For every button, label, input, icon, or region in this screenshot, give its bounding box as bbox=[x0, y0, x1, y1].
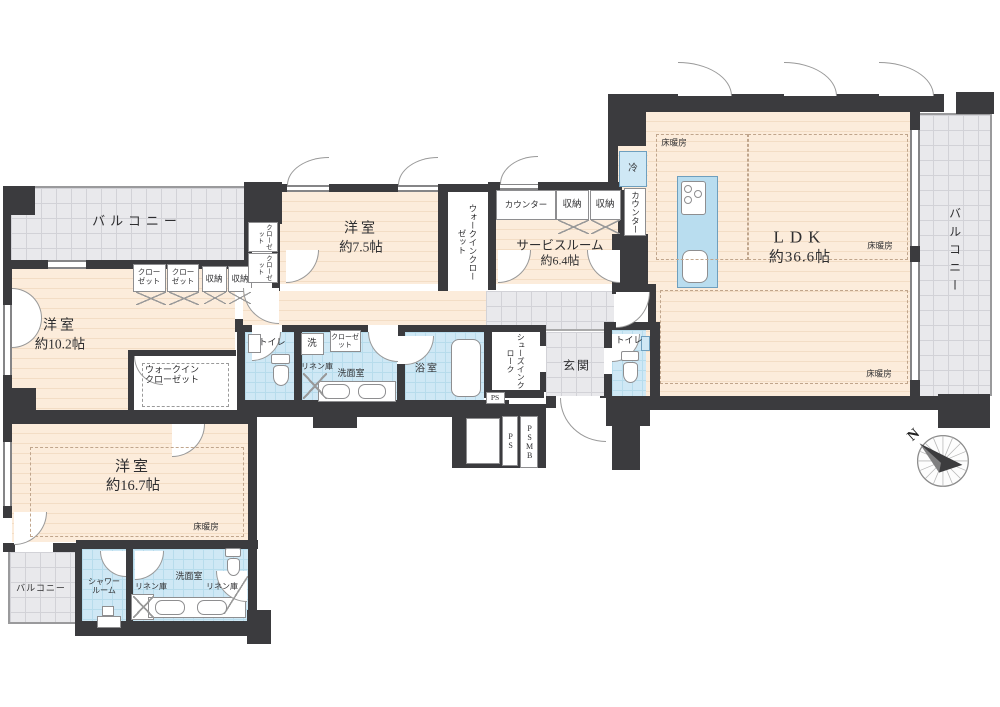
door-arc bbox=[560, 398, 606, 442]
wall-segment bbox=[75, 549, 82, 621]
walk-in-closet-label: ウォークインクローゼット bbox=[142, 365, 202, 386]
fridge-label: 冷 bbox=[628, 163, 638, 175]
door-arc bbox=[678, 62, 732, 96]
wall-segment bbox=[3, 424, 12, 442]
closet-label: クローゼット bbox=[331, 333, 359, 349]
linen-label: リネン庫 bbox=[206, 582, 238, 592]
floor-heating-zone bbox=[656, 134, 748, 260]
compass: N bbox=[902, 420, 980, 498]
bath-label: 浴室 bbox=[415, 364, 439, 377]
folding-door bbox=[591, 220, 620, 234]
wall-segment bbox=[247, 610, 271, 644]
walk-in-closet-label: ウォークインクローゼット bbox=[456, 200, 478, 284]
linen-label: リネン庫 bbox=[135, 582, 167, 592]
washroom-label: 洗面室 bbox=[337, 368, 364, 380]
floor-heating-label: 床暖房 bbox=[193, 522, 219, 533]
folding-door bbox=[169, 292, 199, 305]
washer-label: 洗 bbox=[307, 338, 317, 350]
room-label-bedroom-7-5: 洋室 約7.5帖 bbox=[339, 220, 383, 255]
room-name: サービスルーム bbox=[516, 237, 603, 253]
toilet-label: トイレ bbox=[258, 337, 285, 349]
closet-label: クローゼット bbox=[170, 268, 196, 285]
wall-segment bbox=[910, 380, 920, 396]
room-name: LDK bbox=[769, 227, 831, 249]
wall-segment bbox=[604, 374, 612, 398]
room-label-ldk: LDK 約36.6帖 bbox=[769, 227, 831, 268]
wall-segment bbox=[484, 325, 546, 332]
room-name: 洋室 bbox=[339, 220, 383, 238]
room-label-bedroom-16-7: 洋室 約16.7帖 bbox=[106, 458, 160, 496]
door-arc bbox=[287, 157, 329, 185]
counter-label: カウンター bbox=[505, 200, 548, 211]
storage-label: 収納 bbox=[562, 199, 581, 211]
door-gap bbox=[252, 325, 282, 332]
shoes-in-cloak-label: シューズインクローク bbox=[505, 332, 525, 390]
wall-segment bbox=[3, 506, 12, 518]
washroom-label: 洗面室 bbox=[175, 571, 202, 583]
floor-heating-label: 床暖房 bbox=[866, 369, 892, 380]
door-gap bbox=[397, 336, 405, 364]
folding-door bbox=[229, 292, 251, 304]
toilet-bowl bbox=[227, 558, 240, 576]
wall-segment bbox=[608, 94, 944, 112]
sink bbox=[155, 600, 185, 615]
wall-segment bbox=[484, 325, 492, 398]
entrance-step-line bbox=[546, 329, 604, 331]
sink bbox=[358, 384, 386, 399]
door-gap bbox=[368, 325, 398, 332]
psmb-label: PSMB bbox=[524, 416, 534, 468]
window bbox=[500, 183, 538, 190]
sink bbox=[197, 600, 227, 615]
door-arc bbox=[879, 62, 934, 96]
room-size: 約6.4帖 bbox=[516, 253, 603, 268]
folding-door bbox=[204, 292, 226, 304]
window bbox=[398, 185, 438, 192]
shower-column bbox=[102, 606, 114, 616]
counter-label: カウンター bbox=[630, 189, 641, 235]
room-label-bedroom-10-2: 洋室 約10.2帖 bbox=[35, 317, 86, 352]
wall-segment bbox=[956, 92, 994, 114]
wall-segment bbox=[604, 322, 612, 348]
closet-label: クローゼット bbox=[255, 255, 272, 281]
entrance-label: 玄関 bbox=[563, 358, 591, 373]
floor-heating-label: 床暖房 bbox=[661, 138, 687, 149]
door-arc bbox=[398, 157, 438, 185]
toilet-bowl bbox=[623, 362, 638, 383]
floor-plan: LDK 約36.6帖 洋室 約7.5帖 洋室 約10.2帖 洋室 約16.7帖 … bbox=[0, 0, 1000, 707]
room-size: 約7.5帖 bbox=[339, 238, 383, 255]
balcony-label: バルコニー bbox=[946, 207, 961, 297]
window bbox=[3, 305, 12, 375]
wall-segment bbox=[648, 284, 656, 324]
wall-segment bbox=[910, 112, 920, 130]
window bbox=[3, 442, 12, 506]
room-size: 約16.7帖 bbox=[106, 477, 160, 496]
room-name: 洋室 bbox=[106, 458, 160, 477]
folding-door bbox=[136, 292, 166, 305]
window bbox=[287, 185, 329, 192]
storage-label: 収納 bbox=[231, 274, 248, 285]
corridor-floor bbox=[243, 291, 486, 325]
room-size: 約10.2帖 bbox=[35, 335, 86, 352]
storage-label: 収納 bbox=[205, 274, 222, 285]
ps-label: PS bbox=[491, 393, 499, 403]
bathtub bbox=[451, 339, 481, 397]
closet-label: クローゼット bbox=[255, 224, 272, 250]
ps-label: PS bbox=[505, 421, 515, 461]
door-arc bbox=[784, 62, 837, 96]
window bbox=[48, 260, 86, 269]
wall-segment bbox=[128, 350, 134, 414]
wall-segment bbox=[650, 322, 660, 400]
toilet-tank bbox=[271, 354, 290, 364]
sink bbox=[322, 384, 350, 399]
wall-segment bbox=[313, 415, 357, 428]
folding-door bbox=[558, 220, 589, 234]
wall-segment bbox=[3, 186, 11, 262]
toilet-label: トイレ bbox=[615, 335, 642, 347]
room-name: 洋室 bbox=[35, 317, 86, 335]
shower-base bbox=[97, 616, 121, 628]
closet-label: クローゼット bbox=[136, 268, 162, 285]
shower-room-label: シャワールーム bbox=[86, 577, 122, 595]
room-label-service-room: サービスルーム 約6.4帖 bbox=[516, 237, 603, 268]
wall-segment bbox=[438, 184, 448, 291]
balcony-label: バルコニー bbox=[16, 583, 66, 595]
door-arc bbox=[500, 156, 538, 184]
wall-segment bbox=[612, 426, 640, 470]
folding-door bbox=[133, 596, 154, 618]
floor-heating-label: 床暖房 bbox=[867, 241, 893, 252]
linen-label: リネン庫 bbox=[301, 362, 333, 372]
wall-segment bbox=[910, 246, 920, 262]
balcony-label: バルコニー bbox=[92, 214, 182, 231]
wall-segment bbox=[608, 112, 646, 146]
wall-segment bbox=[602, 396, 650, 426]
window bbox=[910, 262, 920, 380]
door-gap bbox=[540, 346, 546, 372]
wall-segment bbox=[244, 182, 282, 224]
wall-segment bbox=[3, 269, 12, 305]
toilet-tank bbox=[621, 351, 639, 361]
toilet-tank bbox=[225, 548, 241, 557]
window bbox=[910, 130, 920, 246]
storage-label: 収納 bbox=[595, 199, 614, 211]
wall-segment bbox=[488, 184, 496, 290]
toilet-bowl bbox=[273, 365, 289, 386]
shaft-box bbox=[466, 418, 500, 464]
wall-segment bbox=[248, 410, 257, 625]
wall-segment bbox=[446, 184, 492, 192]
room-size: 約36.6帖 bbox=[769, 248, 831, 267]
compass-north-label: N bbox=[904, 425, 923, 444]
